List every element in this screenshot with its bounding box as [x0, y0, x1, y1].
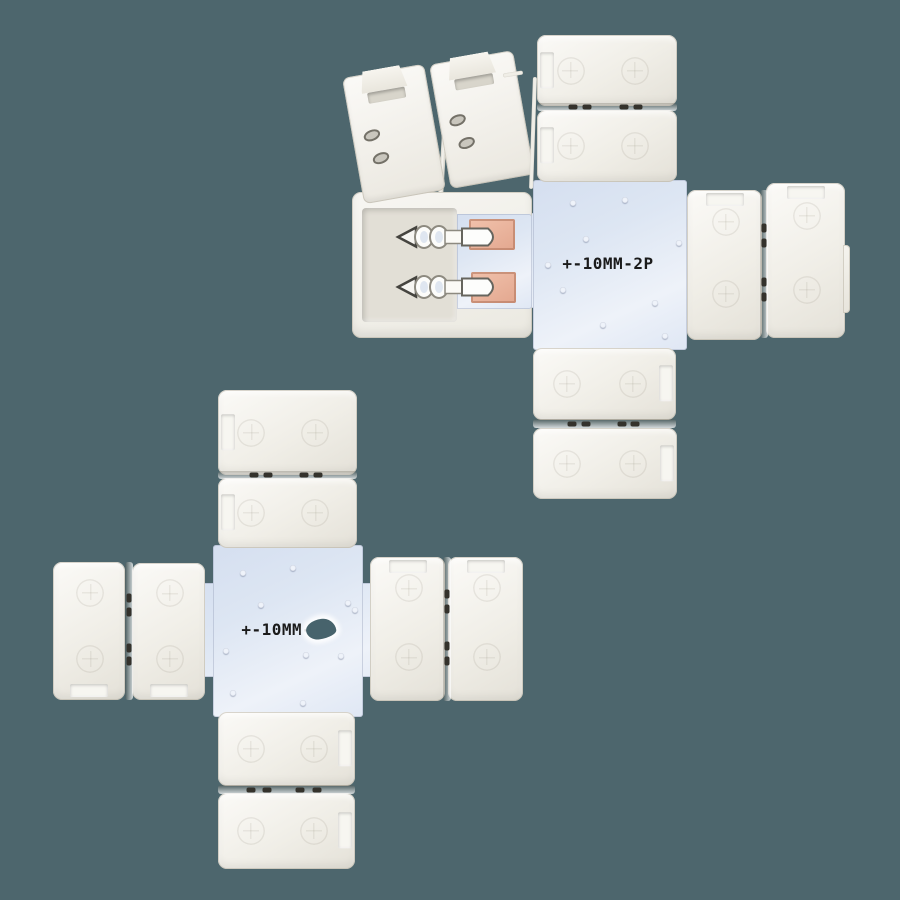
clip-seam: [125, 562, 133, 700]
via-dot: [622, 197, 628, 203]
contact-dot: [127, 607, 132, 616]
contact-dot: [762, 239, 767, 248]
clip-slot: [659, 365, 673, 401]
contact-dot: [619, 105, 628, 110]
contact-dot: [762, 224, 767, 233]
clip-slot: [70, 684, 108, 697]
via-dot: [303, 652, 309, 658]
via-dot: [352, 607, 358, 613]
lid-hole: [362, 127, 382, 144]
lid-half: [342, 64, 446, 204]
via-dot: [223, 648, 229, 654]
contact-dot: [617, 421, 626, 426]
via-dot: [300, 700, 306, 706]
lid-hole: [371, 150, 391, 167]
clip-slot: [338, 730, 352, 766]
contact-dot: [445, 656, 450, 665]
strip-clip: [537, 35, 677, 106]
lid-hole: [457, 135, 477, 152]
contact-dot: [569, 105, 578, 110]
contact-dot: [263, 787, 272, 792]
product-photo-canvas: { "colors": { "background": "#4d666d", "…: [0, 0, 900, 900]
strip-clip: [132, 563, 205, 700]
contact-dot: [264, 473, 273, 478]
via-dot: [345, 600, 351, 606]
contact-dot: [762, 292, 767, 301]
via-dot: [662, 333, 668, 339]
contact-dot: [445, 604, 450, 613]
via-dot: [338, 653, 344, 659]
contact-dot: [633, 105, 642, 110]
clip-seam: [760, 190, 768, 338]
pin-terminals: [392, 218, 512, 318]
contact-dot: [312, 787, 321, 792]
strip-clip: [218, 478, 357, 548]
via-dot: [570, 200, 576, 206]
strip-clip: [218, 390, 357, 475]
contact-dot: [445, 590, 450, 599]
strip-clip: [53, 562, 125, 700]
open-clip-body: [352, 192, 532, 338]
clip-slot: [706, 193, 744, 206]
strip-clip: [533, 348, 676, 420]
via-dot: [560, 287, 566, 293]
contact-dot: [630, 421, 639, 426]
contact-dot: [583, 105, 592, 110]
via-dot: [676, 240, 682, 246]
contact-dot: [127, 643, 132, 652]
contact-dot: [567, 421, 576, 426]
contact-dot: [246, 787, 255, 792]
x-connector-assembly-closed: +-10MM-2P: [40, 385, 540, 870]
strip-clip: [448, 557, 523, 701]
clip-slot: [540, 52, 554, 88]
clip-slot: [467, 560, 505, 573]
via-dot: [545, 262, 551, 268]
clip-slot: [221, 494, 235, 530]
contact-dot: [314, 473, 323, 478]
via-dot: [583, 236, 589, 242]
clip-seam: [537, 103, 677, 111]
strip-clip: [218, 793, 355, 869]
clip-slot: [221, 414, 235, 450]
clip-slot: [660, 445, 674, 481]
contact-dot: [250, 473, 259, 478]
clip-slot: [389, 560, 427, 573]
via-dot: [290, 565, 296, 571]
contact-dot: [127, 593, 132, 602]
via-dot: [652, 300, 658, 306]
contact-dot: [300, 473, 309, 478]
via-dot: [600, 322, 606, 328]
strip-clip: [687, 190, 762, 340]
strip-clip: [766, 183, 845, 338]
lid-hole: [448, 112, 468, 129]
via-dot: [230, 690, 236, 696]
via-dot: [240, 570, 246, 576]
open-clip-lid: [342, 48, 537, 206]
strip-clip: [537, 110, 677, 182]
via-dot: [258, 602, 264, 608]
contact-dot: [581, 421, 590, 426]
contact-dot: [445, 642, 450, 651]
contact-dot: [762, 277, 767, 286]
contact-dot: [296, 787, 305, 792]
clip-slot: [787, 186, 825, 199]
clip-seam: [533, 419, 676, 428]
clip-slot: [150, 684, 188, 697]
clip-end-tab: [843, 245, 850, 313]
strip-clip: [533, 428, 677, 499]
contact-dot: [127, 657, 132, 666]
pcb-label: +-10MM-2P: [558, 256, 658, 272]
clip-seam: [218, 471, 357, 479]
strip-clip: [218, 712, 355, 786]
clip-slot: [540, 127, 554, 163]
clip-slot: [338, 812, 352, 848]
strip-clip: [370, 557, 445, 701]
clip-seam: [218, 785, 355, 794]
clip-seam: [443, 557, 451, 701]
